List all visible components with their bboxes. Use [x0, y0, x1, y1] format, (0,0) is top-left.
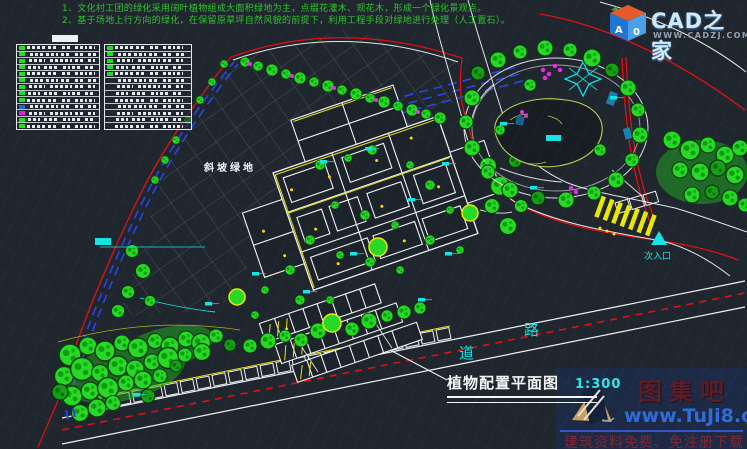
table-cell-text — [72, 66, 82, 69]
table-cell-text — [138, 85, 146, 88]
plant-symbol-swatch — [19, 78, 25, 82]
table-cell-text — [75, 46, 87, 49]
plant-schedule-table-left — [16, 44, 100, 130]
table-cell-text — [88, 59, 95, 62]
table-cell-text — [27, 125, 45, 128]
table-cell-text — [63, 92, 70, 95]
table-cell-text — [151, 66, 158, 69]
table-cell-text — [72, 118, 82, 121]
table-cell-text — [88, 105, 97, 108]
table-cell-text — [177, 46, 183, 49]
drawing-scale: 1:300 — [575, 377, 621, 392]
table-cell-text — [132, 92, 146, 95]
table-cell-text — [62, 125, 70, 128]
table-cell-text — [136, 72, 146, 75]
table-row — [105, 123, 191, 129]
plant-symbol-swatch — [19, 46, 25, 50]
plant-symbol-swatch — [107, 105, 113, 109]
plant-symbol-swatch — [107, 98, 113, 102]
table-cell-text — [177, 72, 183, 75]
table-cell-text — [176, 85, 183, 88]
slope-area-label: 斜坡绿地 — [203, 161, 256, 174]
table-cell-text — [46, 79, 58, 82]
table-cell-text — [134, 53, 146, 56]
table-cell-text — [134, 79, 146, 82]
table-cell-text — [149, 53, 159, 56]
table-cell-text — [118, 105, 132, 108]
table-cell-text — [75, 85, 84, 88]
table-row — [17, 123, 99, 129]
table-cell-text — [61, 105, 71, 108]
table-cell-text — [163, 85, 172, 88]
plant-symbol-swatch — [107, 46, 113, 50]
drawing-title: 植物配置平面图 — [447, 374, 559, 392]
table-cell-text — [85, 92, 93, 95]
table-cell-text — [163, 59, 172, 62]
garden-label-block — [546, 135, 561, 141]
table-cell-text — [44, 118, 58, 121]
table-cell-text — [28, 118, 40, 121]
table-cell-text — [63, 66, 70, 69]
table-cell-text — [50, 112, 58, 115]
plant-symbol-swatch — [19, 111, 25, 115]
table-cell-text — [116, 92, 128, 95]
note-line-1: 1、文化村工团的绿化采用阔叶植物组成大面积绿地为主，点缀花灌木、观花木，形成一个… — [62, 3, 510, 15]
plant-schedule-table-right — [104, 44, 192, 130]
table-cell-text — [60, 59, 72, 62]
table-cell-text — [61, 79, 71, 82]
table-cell-text — [117, 85, 133, 88]
table-cell-text — [85, 118, 93, 121]
table-cell-text — [150, 125, 158, 128]
cad-drawing-canvas: 斜坡绿地 道 路 次入口 1、文化村工团的绿化采用阔叶植物组成大面积绿地为主，点… — [0, 0, 747, 449]
tree-cluster-bottom-left — [52, 329, 236, 422]
table-cell-text — [150, 46, 158, 49]
plant-symbol-swatch — [107, 118, 113, 122]
cadzj-cube-logo-icon[interactable]: A 0 — [607, 3, 649, 45]
table-cell-text — [136, 99, 146, 102]
table-cell-text — [176, 79, 185, 82]
plant-symbol-swatch — [107, 72, 113, 76]
table-cell-text — [48, 99, 58, 102]
table-cell-text — [44, 92, 58, 95]
table-cell-text — [117, 112, 133, 115]
plant-symbol-swatch — [107, 59, 113, 63]
table-cell-text — [46, 105, 58, 108]
table-cell-text — [177, 99, 183, 102]
table-cell-text — [75, 99, 87, 102]
table-cell-text — [62, 46, 70, 49]
table-cell-text — [75, 59, 84, 62]
tuji-site-url[interactable]: www.TuJi8.com — [624, 405, 747, 427]
table-cell-text — [29, 85, 45, 88]
table-cell-text — [151, 92, 158, 95]
plant-symbol-swatch — [19, 65, 25, 69]
road-name-char-2: 路 — [524, 321, 539, 339]
table-cell-text — [132, 118, 146, 121]
table-cell-text — [118, 79, 132, 82]
table-cell-text — [62, 72, 70, 75]
table-cell-text — [29, 112, 45, 115]
table-cell-text — [160, 92, 170, 95]
table-cell-text — [89, 99, 95, 102]
table-cell-text — [46, 53, 58, 56]
table-cell-text — [50, 85, 58, 88]
secondary-entrance-label: 次入口 — [644, 250, 671, 262]
table-cell-text — [89, 125, 95, 128]
plant-symbol-swatch — [19, 118, 25, 122]
table-cell-text — [138, 112, 146, 115]
table-cell-text — [136, 125, 146, 128]
drawing-title-block: 植物配置平面图1:300 — [447, 372, 621, 403]
table-cell-text — [132, 66, 146, 69]
table-cell-text — [88, 112, 95, 115]
plant-symbol-swatch — [107, 52, 113, 56]
table-cell-text — [160, 118, 170, 121]
table-cell-text — [88, 79, 97, 82]
table-cell-text — [75, 79, 83, 82]
star-pavilion — [565, 62, 601, 96]
table-cell-text — [115, 46, 133, 49]
table-cell-text — [163, 46, 175, 49]
table-cell-text — [30, 53, 44, 56]
table-cell-text — [88, 53, 97, 56]
table-cell-text — [48, 46, 58, 49]
plant-symbol-swatch — [19, 98, 25, 102]
title-underline — [447, 396, 597, 403]
table-cell-text — [27, 72, 45, 75]
table-cell-text — [176, 53, 185, 56]
table-cell-text — [48, 125, 58, 128]
plant-table-title — [52, 35, 78, 42]
table-cell-text — [177, 125, 183, 128]
table-cell-text — [28, 66, 40, 69]
table-cell-text — [148, 59, 160, 62]
table-cell-text — [60, 112, 72, 115]
plant-symbol-swatch — [19, 124, 25, 128]
note-line-2: 2、基于场地上行方向的绿化，在保留原草坪自然风貌的前提下，利用工程手段对绿地进行… — [62, 15, 510, 27]
table-cell-text — [150, 72, 158, 75]
table-cell-text — [75, 72, 87, 75]
table-cell-text — [89, 46, 95, 49]
cadzj-site-url[interactable]: WWW.CADZJ.COM — [653, 31, 747, 40]
table-cell-text — [44, 66, 58, 69]
table-cell-text — [48, 72, 58, 75]
plant-symbol-swatch — [19, 105, 25, 109]
plant-symbol-swatch — [19, 85, 25, 89]
table-cell-text — [173, 118, 181, 121]
table-cell-text — [85, 66, 93, 69]
secondary-entrance-arrow — [651, 231, 667, 245]
plant-symbol-swatch — [107, 78, 113, 82]
road-name-char-1: 道 — [459, 344, 474, 362]
table-cell-text — [27, 99, 45, 102]
table-cell-text — [50, 59, 58, 62]
table-cell-text — [150, 99, 158, 102]
plant-symbol-swatch — [107, 85, 113, 89]
table-cell-text — [29, 59, 45, 62]
table-cell-text — [134, 105, 146, 108]
table-cell-text — [115, 72, 133, 75]
table-cell-text — [27, 46, 45, 49]
plant-symbol-swatch — [19, 59, 25, 63]
table-cell-text — [75, 112, 84, 115]
table-cell-text — [75, 105, 83, 108]
table-cell-text — [138, 59, 146, 62]
table-cell-text — [75, 125, 87, 128]
table-cell-text — [163, 112, 172, 115]
plant-symbol-swatch — [107, 65, 113, 69]
plant-symbol-swatch — [107, 111, 113, 115]
plant-symbol-swatch — [19, 72, 25, 76]
plant-symbol-swatch — [107, 91, 113, 95]
table-cell-text — [163, 105, 171, 108]
table-cell-text — [28, 92, 40, 95]
table-cell-text — [118, 53, 132, 56]
table-cell-text — [62, 99, 70, 102]
tuji-tagline: 建筑资料免费、免注册下载 — [564, 432, 744, 449]
table-cell-text — [61, 53, 71, 56]
table-cell-text — [63, 118, 70, 121]
table-cell-text — [163, 79, 171, 82]
table-cell-text — [116, 66, 128, 69]
table-cell-text — [148, 85, 160, 88]
table-cell-text — [149, 79, 159, 82]
table-cell-text — [163, 72, 175, 75]
table-cell-text — [136, 46, 146, 49]
table-cell-text — [173, 92, 181, 95]
table-cell-text — [176, 105, 185, 108]
table-cell-text — [160, 66, 170, 69]
table-cell-text — [72, 92, 82, 95]
table-cell-text — [148, 112, 160, 115]
table-cell-text — [176, 112, 183, 115]
table-cell-text — [60, 85, 72, 88]
cube-letter-left: A — [615, 25, 623, 36]
table-cell-text — [30, 105, 44, 108]
table-cell-text — [75, 53, 83, 56]
table-cell-text — [115, 125, 133, 128]
table-cell-text — [163, 53, 171, 56]
table-cell-text — [149, 105, 159, 108]
cube-letter-right: 0 — [633, 27, 640, 38]
table-cell-text — [117, 59, 133, 62]
general-notes: 1、文化村工团的绿化采用阔叶植物组成大面积绿地为主，点缀花灌木、观花木，形成一个… — [62, 3, 510, 27]
plant-symbol-swatch — [19, 52, 25, 56]
table-cell-text — [116, 118, 128, 121]
table-cell-text — [115, 99, 133, 102]
table-cell-text — [163, 99, 175, 102]
plant-symbol-swatch — [107, 124, 113, 128]
cadzj-watermark[interactable]: A 0 CAD之家 WWW.CADZJ.COM — [605, 0, 747, 48]
table-cell-text — [30, 79, 44, 82]
table-cell-text — [88, 85, 95, 88]
tuji-brand-text[interactable]: 图集吧 — [638, 372, 731, 407]
plant-symbol-swatch — [19, 91, 25, 95]
table-cell-text — [163, 125, 175, 128]
table-cell-text — [151, 118, 158, 121]
table-cell-text — [176, 59, 183, 62]
table-cell-text — [89, 72, 95, 75]
table-cell-text — [173, 66, 181, 69]
